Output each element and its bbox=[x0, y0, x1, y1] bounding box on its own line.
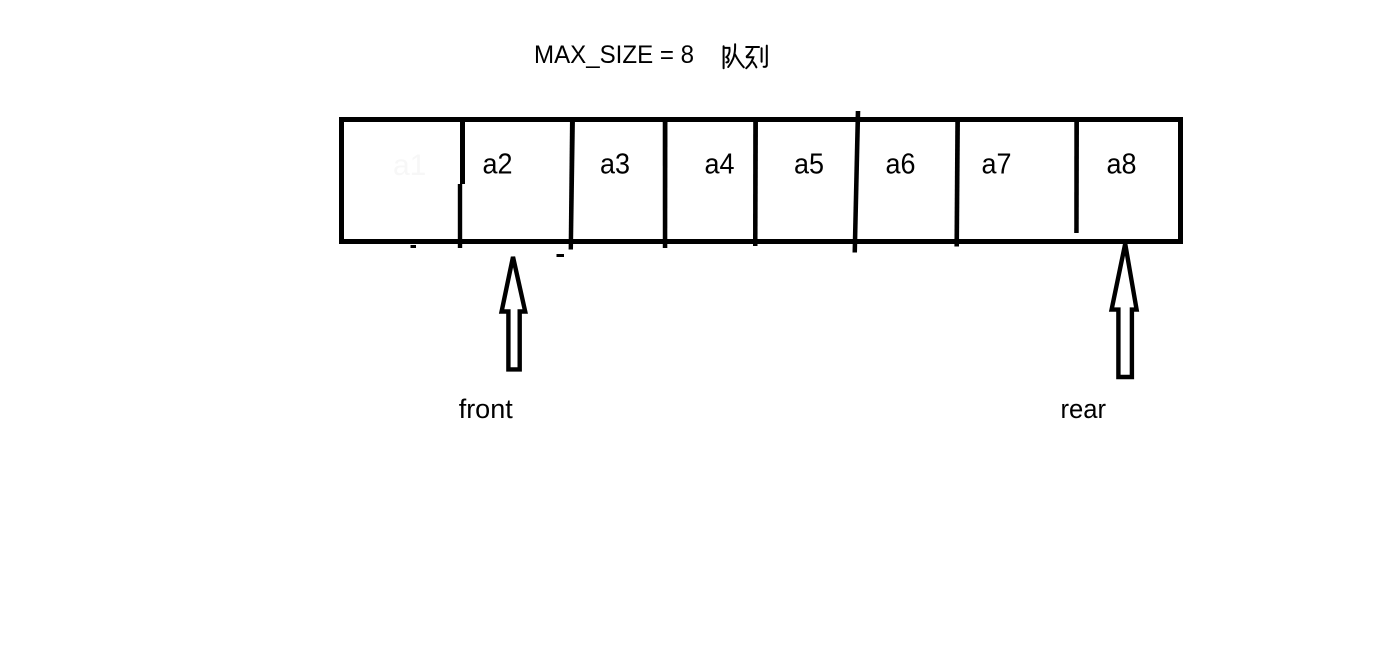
svg-text:a1: a1 bbox=[393, 149, 426, 182]
svg-text:MAX_SIZE = 8: MAX_SIZE = 8 bbox=[534, 41, 694, 69]
svg-text:front: front bbox=[459, 394, 514, 424]
svg-text:a3: a3 bbox=[600, 149, 630, 181]
svg-text:a5: a5 bbox=[794, 149, 824, 181]
svg-text:a6: a6 bbox=[886, 149, 916, 181]
svg-text:rear: rear bbox=[1061, 394, 1107, 424]
svg-text:a4: a4 bbox=[705, 149, 735, 181]
svg-text:a8: a8 bbox=[1107, 149, 1137, 181]
svg-text:a7: a7 bbox=[982, 149, 1012, 181]
svg-text:a2: a2 bbox=[483, 149, 513, 181]
